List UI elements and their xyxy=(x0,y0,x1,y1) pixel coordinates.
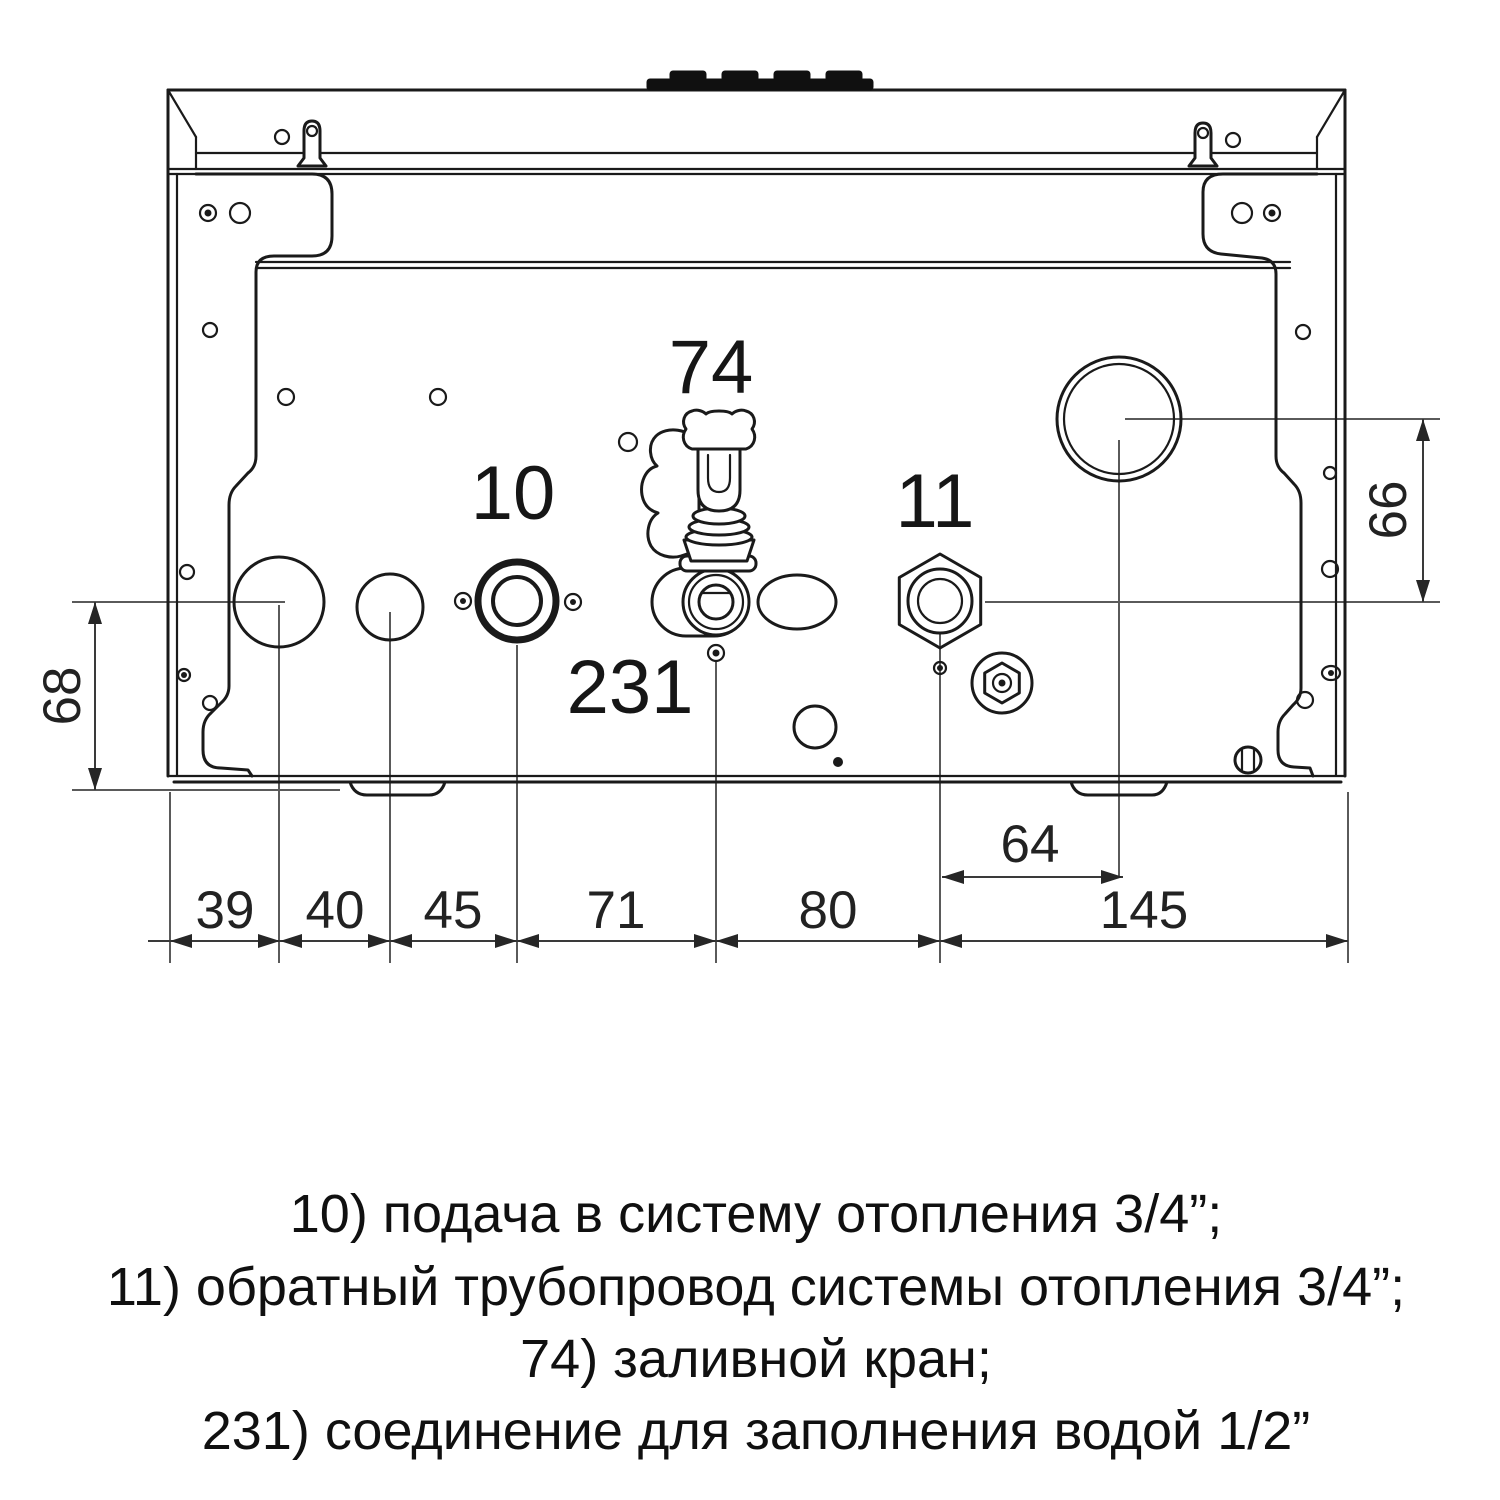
fill-valve-74 xyxy=(642,410,756,571)
left-bracket xyxy=(177,174,332,776)
legend: 10) подача в систему отопления 3/4”; 11)… xyxy=(107,1184,1405,1461)
dim-80-value: 80 xyxy=(799,881,858,940)
terminal-block xyxy=(647,71,873,90)
right-bracket xyxy=(1203,174,1340,776)
label-10: 10 xyxy=(471,451,556,536)
legend-line-11: 11) обратный трубопровод системы отоплен… xyxy=(107,1257,1405,1317)
boiler-bottom-view-page: 68 66 64 39 40 45 71 80 145 74 10 11 231… xyxy=(0,0,1500,1500)
oval-opening xyxy=(758,575,836,629)
valve-handle xyxy=(683,410,754,449)
dimension-68: 68 xyxy=(33,602,102,790)
dimension-64: 64 xyxy=(942,815,1123,884)
dim-39-value: 39 xyxy=(196,881,255,940)
valve-stem xyxy=(698,449,740,511)
mid-rail xyxy=(256,262,1290,268)
dim-40-value: 40 xyxy=(306,881,365,940)
label-11: 11 xyxy=(896,459,975,544)
label-231: 231 xyxy=(567,645,694,730)
dimension-66: 66 xyxy=(1359,419,1430,602)
dimension-chain: 39 40 45 71 80 145 xyxy=(148,881,1348,948)
centerlines xyxy=(72,419,1440,963)
dim-145-value: 145 xyxy=(1100,881,1188,940)
dim-68-value: 68 xyxy=(33,667,92,726)
legend-line-10: 10) подача в систему отопления 3/4”; xyxy=(290,1184,1222,1244)
heating-supply-connection-10 xyxy=(455,562,581,640)
foot-left xyxy=(350,782,445,795)
corner-screw xyxy=(1235,747,1261,773)
mounting-pin-right xyxy=(1189,123,1217,166)
top-hole-right xyxy=(1226,133,1240,147)
dim-64-value: 64 xyxy=(1001,815,1060,874)
dim-66-value: 66 xyxy=(1359,481,1418,540)
dim-71-value: 71 xyxy=(587,881,646,940)
panel-holes xyxy=(278,389,843,767)
legend-line-231: 231) соединение для заполнения водой 1/2… xyxy=(202,1401,1311,1461)
washer-screw xyxy=(972,653,1032,713)
dim-45-value: 45 xyxy=(424,881,483,940)
top-hole-left xyxy=(275,130,289,144)
boiler-bottom-diagram: 68 66 64 39 40 45 71 80 145 74 10 11 231… xyxy=(0,0,1500,1500)
label-74: 74 xyxy=(669,325,754,410)
legend-line-74: 74) заливной кран; xyxy=(520,1329,992,1389)
mounting-pin-left xyxy=(298,121,326,166)
